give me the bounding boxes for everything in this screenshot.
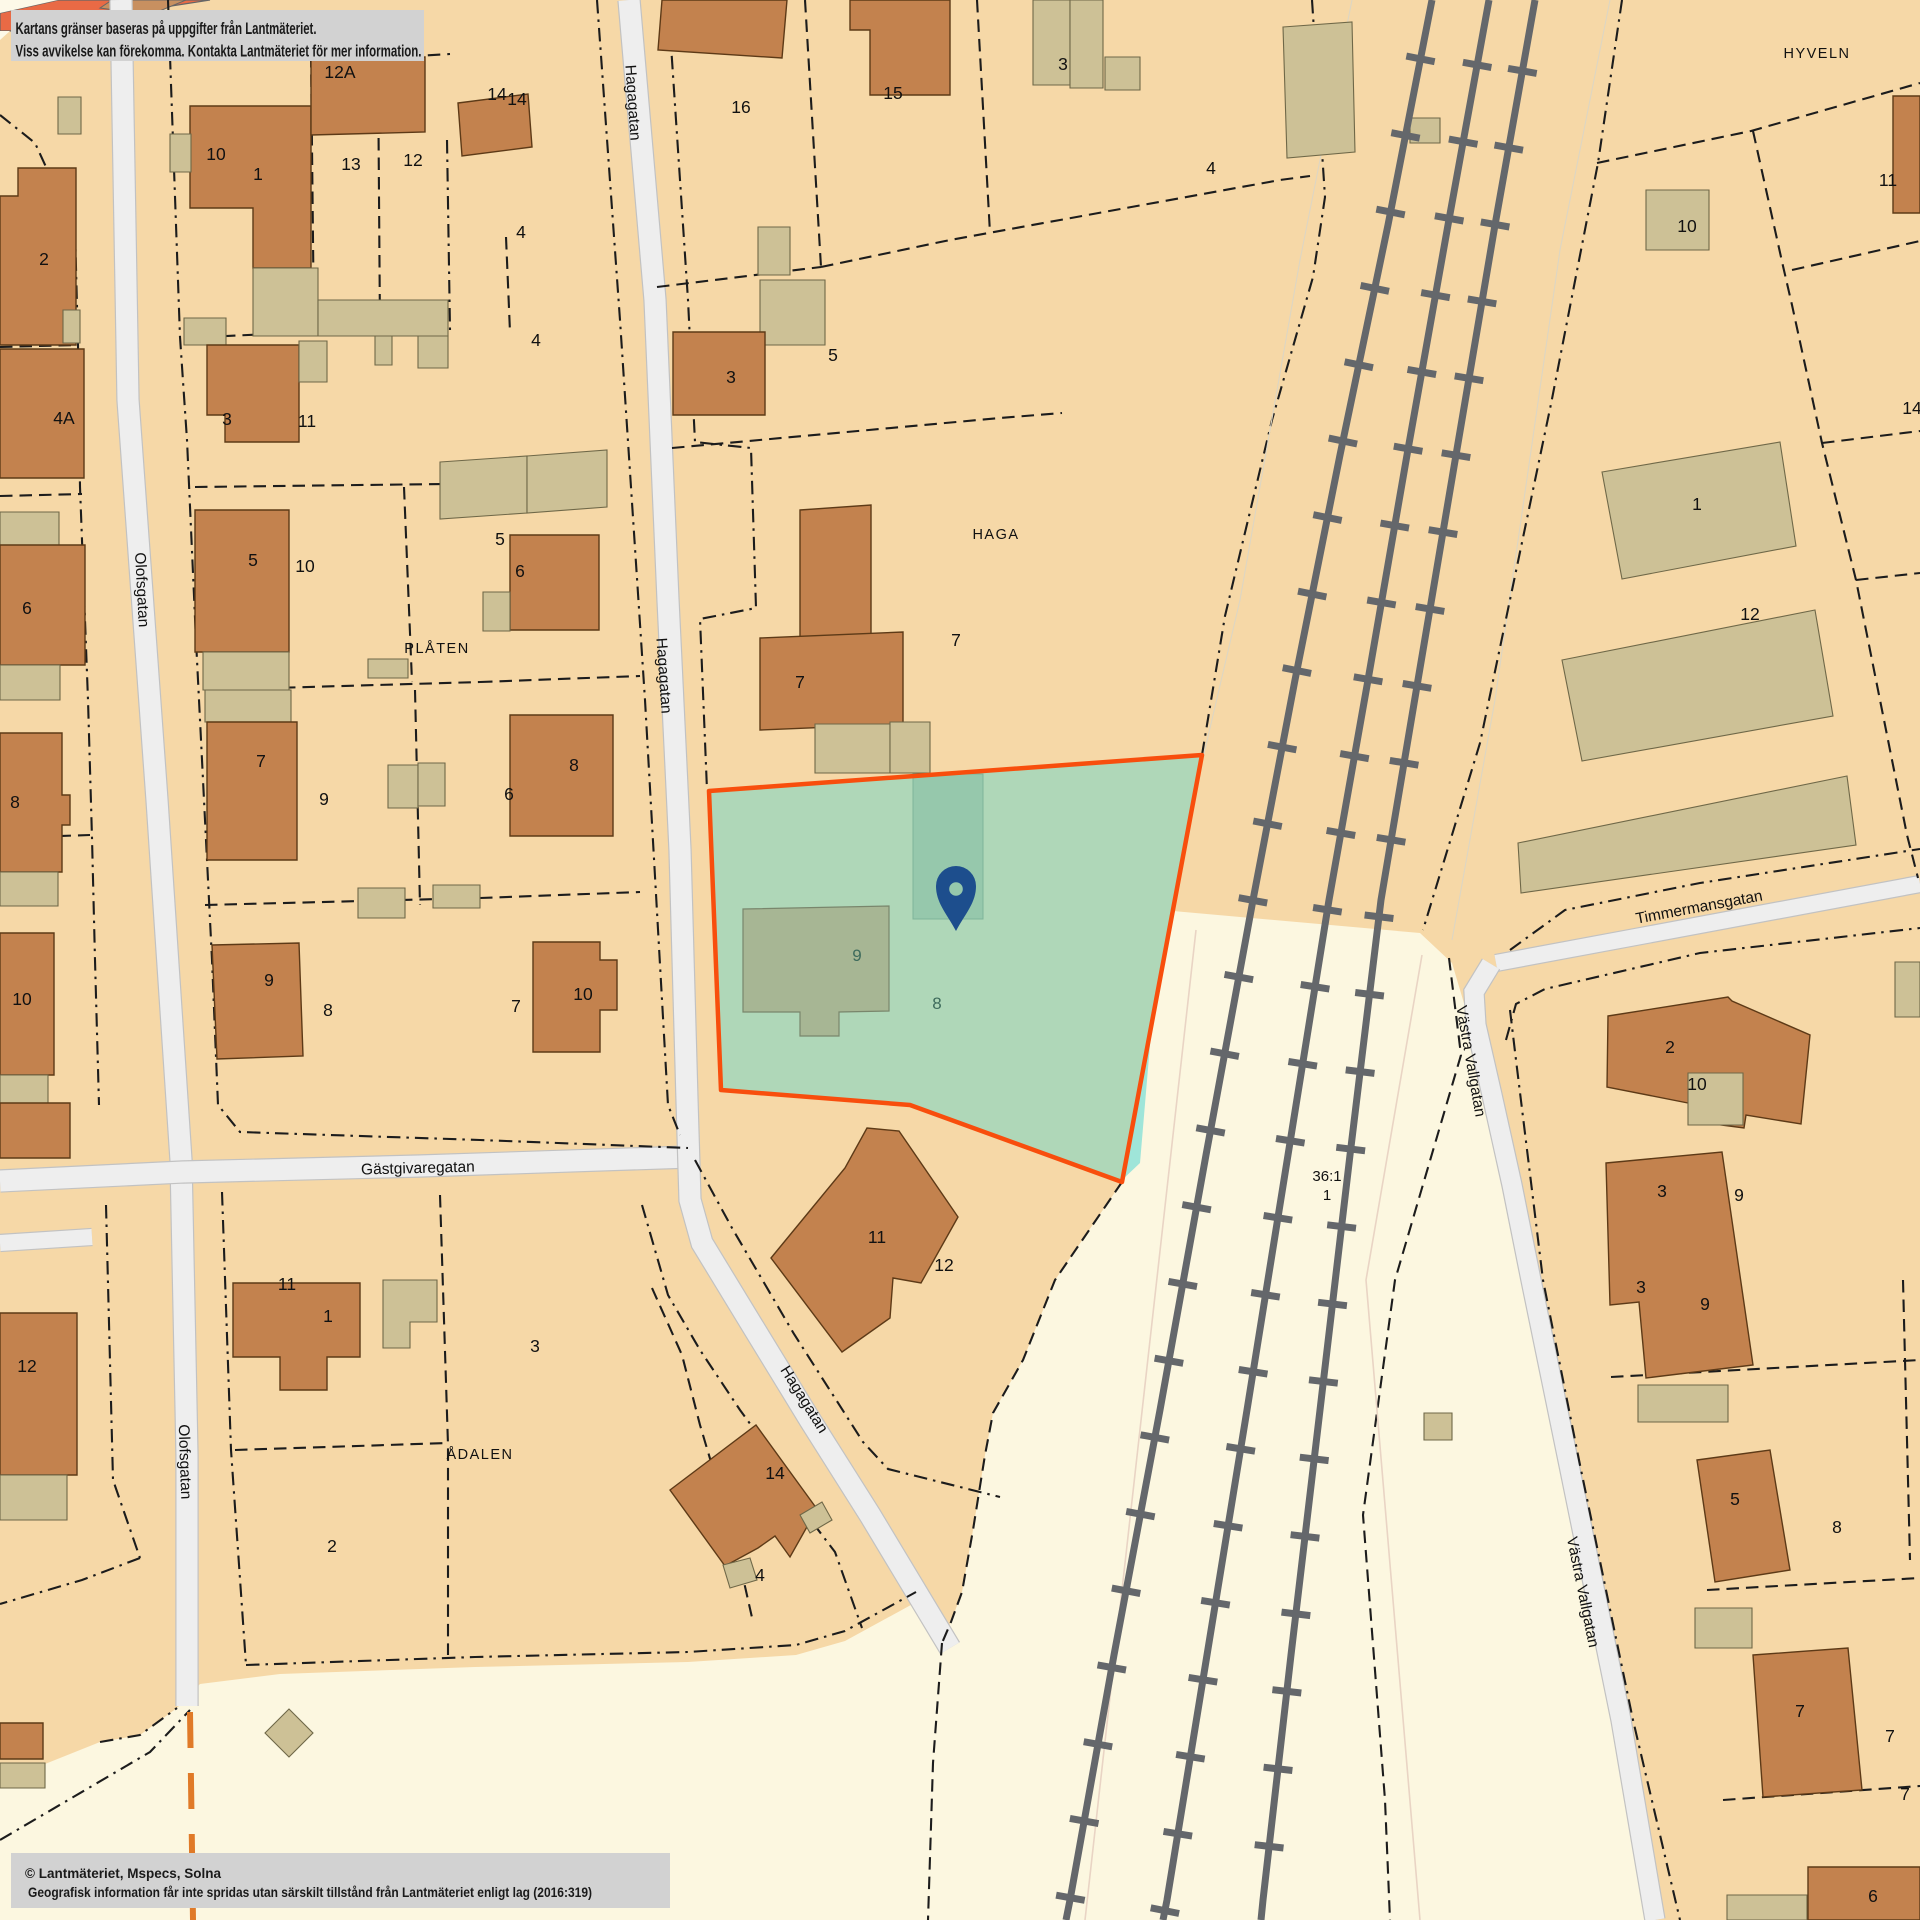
svg-text:11: 11 (1879, 170, 1897, 190)
svg-text:10: 10 (1677, 216, 1697, 236)
svg-text:12: 12 (1740, 604, 1759, 624)
svg-text:14: 14 (507, 89, 527, 109)
svg-text:15: 15 (883, 83, 902, 103)
svg-text:2: 2 (39, 249, 49, 269)
svg-text:HAGA: HAGA (972, 527, 1019, 543)
svg-text:9: 9 (1734, 1185, 1744, 1205)
svg-text:3: 3 (1058, 54, 1068, 74)
svg-text:7: 7 (1885, 1726, 1895, 1746)
svg-text:5: 5 (828, 345, 838, 365)
svg-text:1: 1 (1323, 1187, 1331, 1204)
svg-text:Gästgivaregatan: Gästgivaregatan (361, 1159, 475, 1179)
svg-text:3: 3 (726, 367, 736, 387)
svg-text:6: 6 (515, 561, 525, 581)
svg-text:12: 12 (934, 1255, 953, 1275)
svg-text:1: 1 (323, 1306, 333, 1326)
svg-text:13: 13 (341, 154, 360, 174)
svg-text:1: 1 (253, 164, 263, 184)
svg-text:Kartans gränser baseras på upp: Kartans gränser baseras på uppgifter frå… (16, 19, 317, 38)
svg-text:7: 7 (1795, 1701, 1805, 1721)
svg-text:11: 11 (298, 411, 316, 431)
svg-text:7: 7 (1900, 1784, 1910, 1804)
svg-text:4: 4 (531, 330, 541, 350)
svg-text:Geografisk information får int: Geografisk information får inte spridas … (28, 1885, 592, 1900)
svg-text:10: 10 (295, 556, 315, 576)
svg-text:Viss avvikelse kan förekomma.: Viss avvikelse kan förekomma. Kontakta L… (16, 42, 422, 61)
svg-text:4: 4 (516, 222, 526, 242)
svg-text:5: 5 (1730, 1489, 1740, 1509)
svg-text:3: 3 (1636, 1277, 1646, 1297)
svg-text:10: 10 (573, 984, 593, 1004)
svg-text:7: 7 (951, 630, 961, 650)
svg-text:6: 6 (22, 598, 32, 618)
svg-text:14: 14 (765, 1463, 785, 1483)
svg-text:6: 6 (1868, 1886, 1878, 1906)
svg-text:9: 9 (1700, 1294, 1710, 1314)
svg-text:36:1: 36:1 (1312, 1168, 1341, 1185)
svg-text:9: 9 (852, 946, 861, 965)
svg-text:8: 8 (932, 994, 941, 1013)
svg-text:7: 7 (511, 996, 521, 1016)
svg-text:10: 10 (12, 989, 32, 1009)
svg-text:10: 10 (1687, 1074, 1707, 1094)
svg-text:7: 7 (795, 672, 805, 692)
svg-text:3: 3 (1657, 1181, 1667, 1201)
svg-text:9: 9 (264, 970, 274, 990)
svg-text:12: 12 (403, 150, 422, 170)
svg-text:5: 5 (495, 529, 505, 549)
svg-text:16: 16 (731, 97, 750, 117)
svg-text:4: 4 (1206, 158, 1216, 178)
svg-text:5: 5 (248, 550, 258, 570)
svg-text:12: 12 (17, 1356, 36, 1376)
svg-text:3: 3 (530, 1336, 540, 1356)
svg-text:11: 11 (278, 1274, 296, 1294)
svg-text:© Lantmäteriet, Mspecs, Solna: © Lantmäteriet, Mspecs, Solna (25, 1866, 221, 1881)
svg-text:2: 2 (1665, 1037, 1675, 1057)
svg-text:8: 8 (1832, 1517, 1842, 1537)
svg-text:PLÅTEN: PLÅTEN (404, 640, 469, 657)
svg-text:6: 6 (504, 784, 514, 804)
svg-text:7: 7 (256, 751, 266, 771)
svg-text:8: 8 (10, 792, 20, 812)
svg-text:3: 3 (222, 409, 232, 429)
svg-text:8: 8 (323, 1000, 333, 1020)
svg-text:14: 14 (487, 84, 507, 104)
svg-text:HYVELN: HYVELN (1783, 46, 1850, 62)
svg-text:11: 11 (868, 1227, 886, 1247)
svg-text:10: 10 (206, 144, 226, 164)
svg-text:4A: 4A (53, 408, 75, 428)
svg-text:2: 2 (327, 1536, 337, 1556)
svg-text:Olofsgatan: Olofsgatan (175, 1424, 195, 1500)
svg-text:9: 9 (319, 789, 329, 809)
svg-text:12A: 12A (324, 62, 355, 82)
svg-text:ÅDALEN: ÅDALEN (446, 1446, 513, 1463)
svg-text:4: 4 (755, 1565, 765, 1585)
svg-text:8: 8 (569, 755, 579, 775)
svg-text:1: 1 (1692, 494, 1702, 514)
svg-text:14: 14 (1902, 398, 1920, 418)
